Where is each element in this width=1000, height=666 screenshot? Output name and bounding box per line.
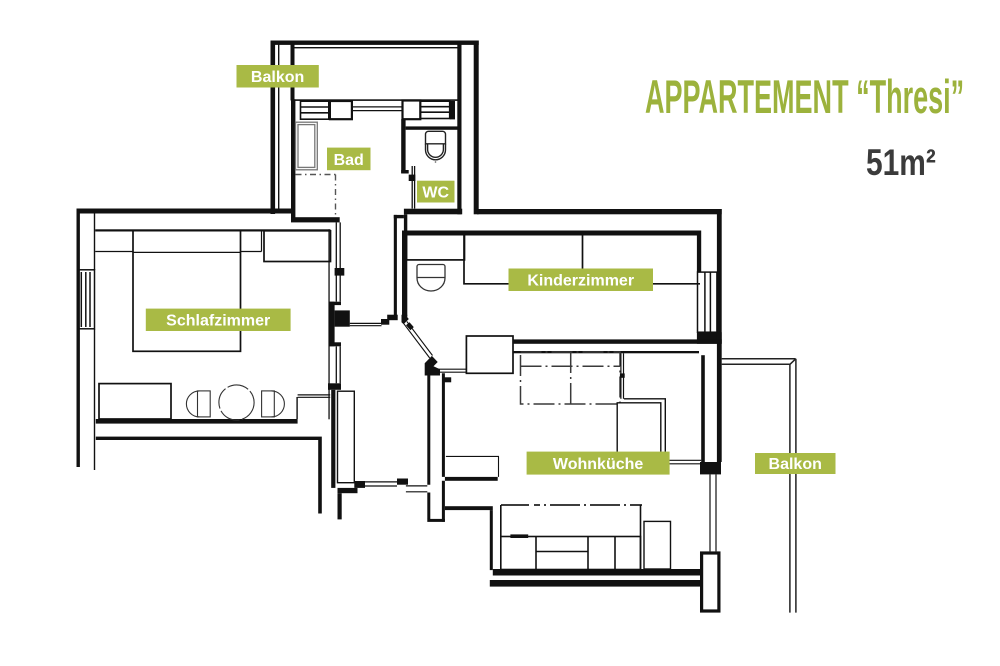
- svg-text:Wohnküche: Wohnküche: [553, 456, 643, 473]
- svg-text:51m²: 51m²: [866, 142, 936, 184]
- svg-text:Balkon: Balkon: [769, 456, 822, 473]
- svg-text:Balkon: Balkon: [251, 69, 304, 86]
- svg-text:Bad: Bad: [334, 152, 364, 169]
- svg-text:WC: WC: [422, 185, 449, 202]
- svg-text:Schlafzimmer: Schlafzimmer: [166, 313, 270, 330]
- svg-text:Kinderzimmer: Kinderzimmer: [527, 273, 634, 290]
- svg-text:APPARTEMENT “Thresi”: APPARTEMENT “Thresi”: [645, 71, 964, 124]
